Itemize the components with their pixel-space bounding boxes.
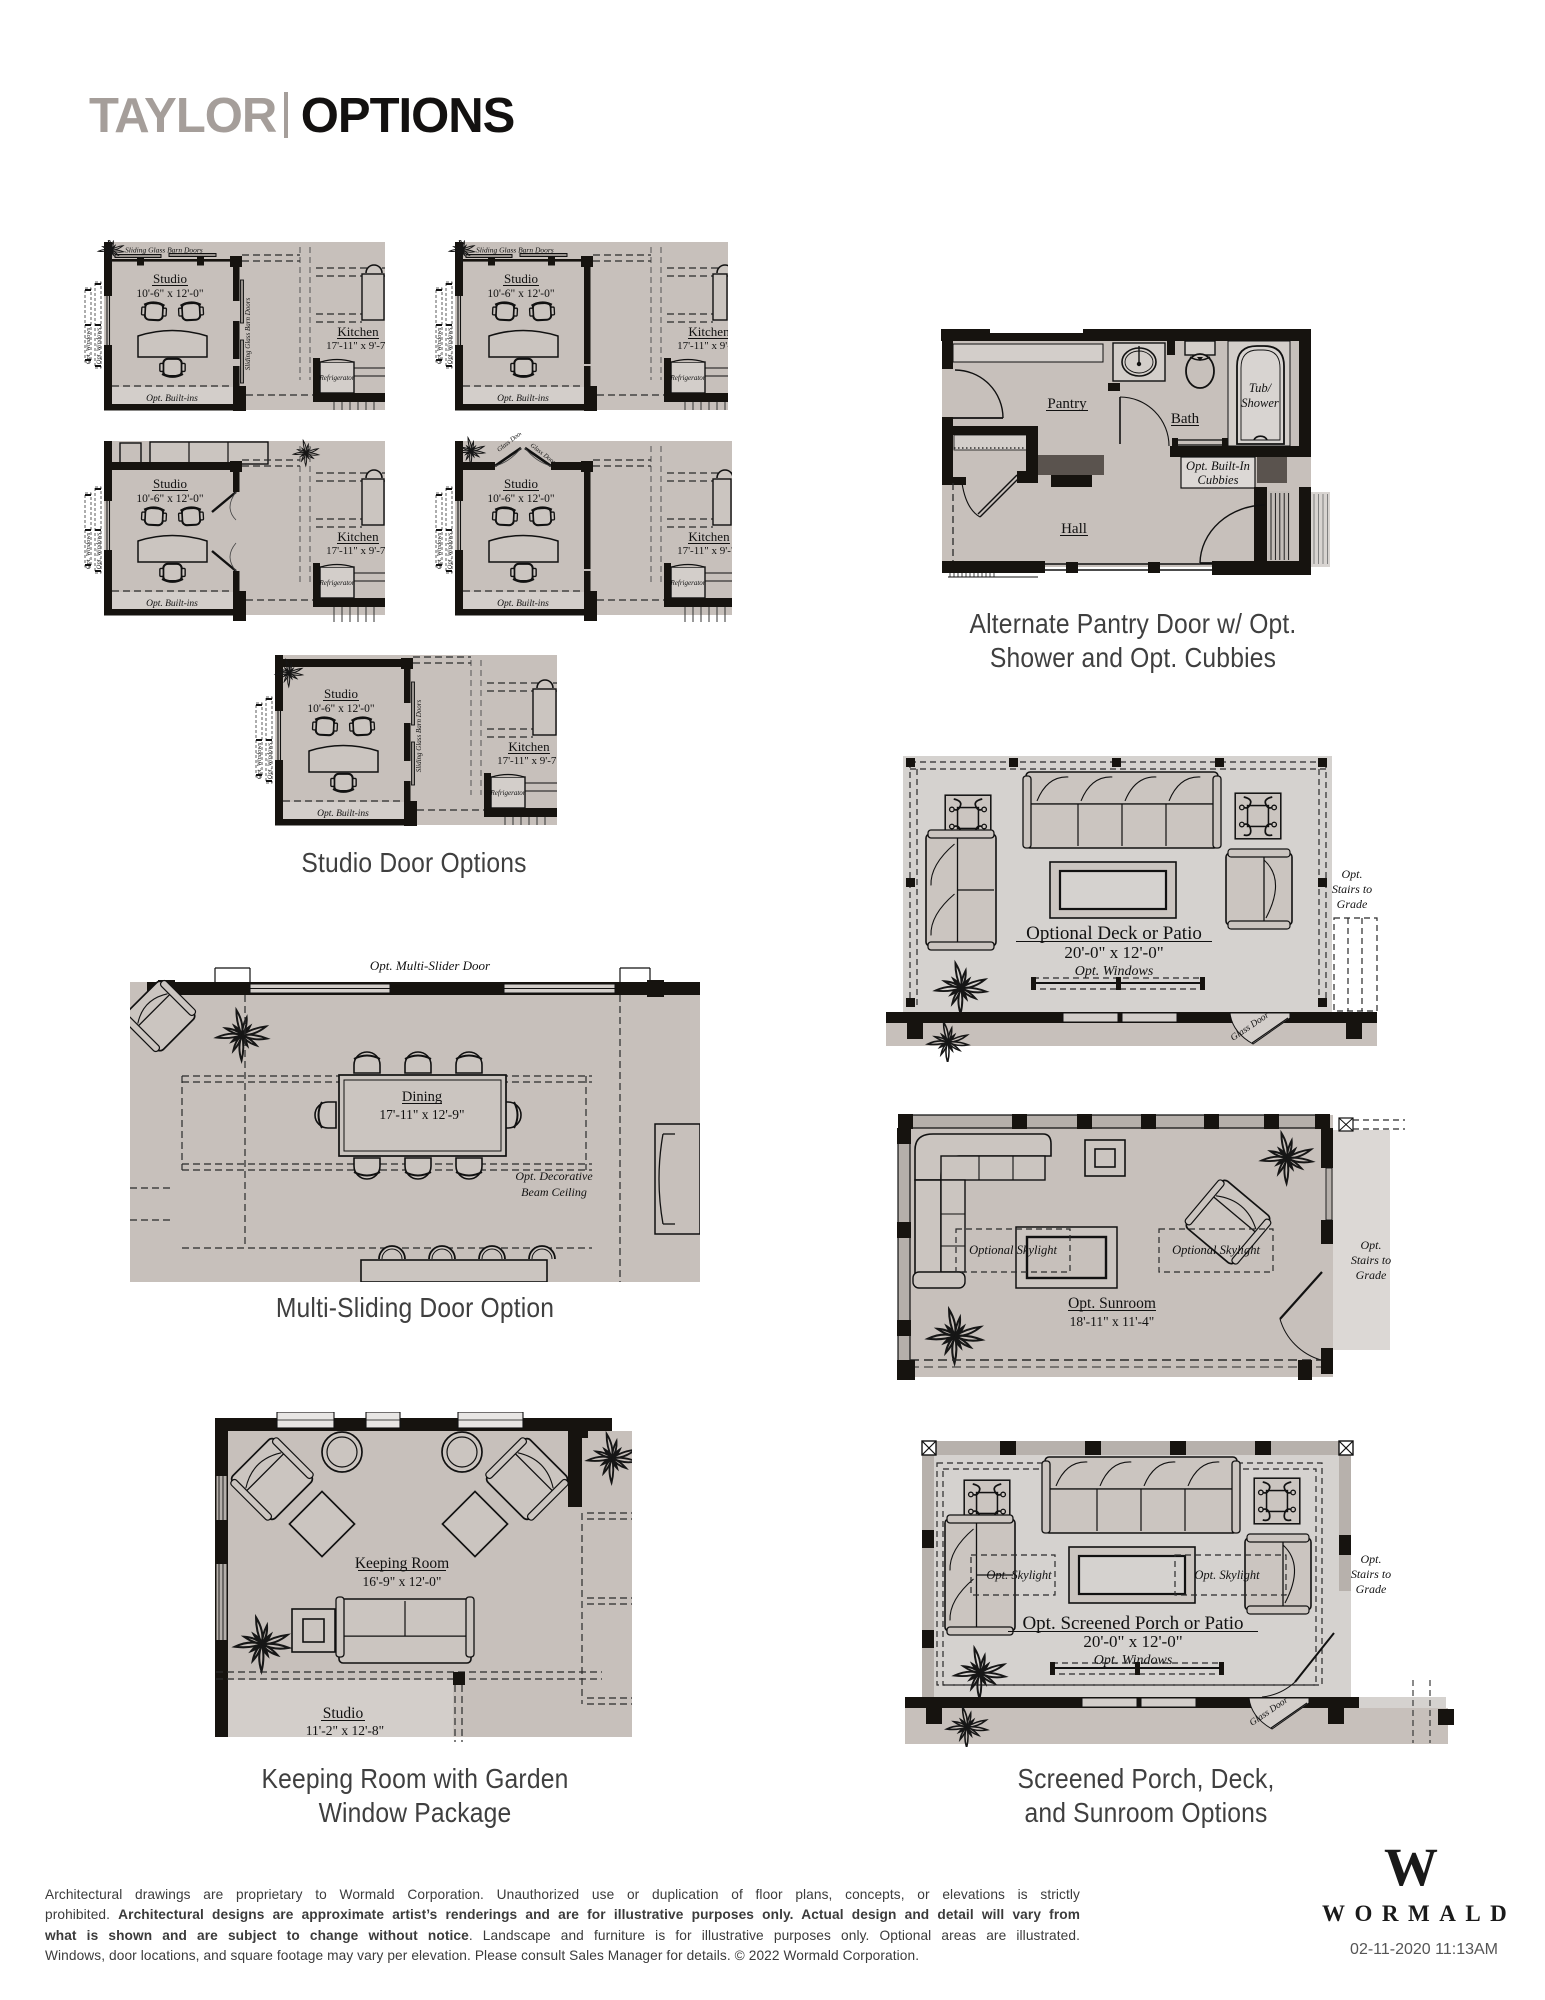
- svg-text:Sliding Glass Barn Doors: Sliding Glass Barn Doors: [415, 699, 423, 772]
- svg-text:20'-0" x 12'-0": 20'-0" x 12'-0": [1064, 943, 1163, 962]
- svg-text:Optional Skylight: Optional Skylight: [969, 1243, 1057, 1257]
- svg-text:Opt.: Opt.: [1361, 1238, 1382, 1252]
- svg-text:Tub/: Tub/: [1249, 381, 1273, 395]
- svg-text:Pantry: Pantry: [1047, 396, 1087, 412]
- svg-text:Stairs to: Stairs to: [1351, 1567, 1391, 1581]
- svg-text:10'-6" x 12'-0": 10'-6" x 12'-0": [136, 288, 203, 300]
- svg-text:Opt. Built-ins: Opt. Built-ins: [317, 809, 369, 819]
- svg-text:Kitchen: Kitchen: [508, 739, 550, 754]
- svg-text:Keeping Room: Keeping Room: [355, 1555, 449, 1572]
- svg-text:Opt. Windows: Opt. Windows: [1075, 964, 1154, 979]
- svg-text:Grade: Grade: [1356, 1268, 1387, 1282]
- svg-text:17'-11" x 12'-9": 17'-11" x 12'-9": [379, 1107, 464, 1122]
- svg-text:Opt. Windows: Opt. Windows: [447, 327, 454, 364]
- svg-text:Grade: Grade: [1337, 897, 1368, 911]
- svg-text:Opt. Built-ins: Opt. Built-ins: [146, 599, 198, 609]
- svg-text:17'-11" x 9'-7": 17'-11" x 9'-7": [326, 545, 385, 557]
- svg-text:Dining: Dining: [402, 1089, 442, 1105]
- svg-text:Bath: Bath: [1171, 411, 1200, 427]
- svg-text:Opt. Built-In: Opt. Built-In: [1186, 459, 1250, 473]
- svg-text:Optional Deck or Patio: Optional Deck or Patio: [1026, 923, 1202, 944]
- svg-text:Opt. Windows: Opt. Windows: [96, 327, 103, 364]
- svg-text:Beam Ceiling: Beam Ceiling: [521, 1185, 587, 1199]
- svg-text:16'-9" x 12'-0": 16'-9" x 12'-0": [363, 1574, 442, 1589]
- svg-text:Opt. Skylight: Opt. Skylight: [986, 1568, 1052, 1582]
- svg-text:Opt.: Opt.: [1361, 1552, 1382, 1566]
- svg-text:Refrigerator: Refrigerator: [670, 374, 706, 382]
- svg-text:Refrigerator: Refrigerator: [490, 789, 526, 797]
- svg-text:Kitchen: Kitchen: [337, 324, 379, 339]
- svg-text:10'-6" x 12'-0": 10'-6" x 12'-0": [487, 493, 554, 505]
- svg-text:Opt. Windows: Opt. Windows: [85, 327, 92, 364]
- svg-text:Stairs to: Stairs to: [1332, 882, 1372, 896]
- svg-text:Opt. Windows: Opt. Windows: [1094, 1653, 1173, 1668]
- svg-text:Opt. Multi-Slider Door: Opt. Multi-Slider Door: [370, 958, 491, 973]
- svg-text:20'-0" x 12'-0": 20'-0" x 12'-0": [1083, 1632, 1182, 1651]
- svg-text:Studio: Studio: [504, 271, 538, 286]
- svg-text:Shower: Shower: [1241, 396, 1279, 410]
- svg-text:Studio: Studio: [324, 686, 358, 701]
- svg-text:Optional Skylight: Optional Skylight: [1172, 1243, 1260, 1257]
- svg-text:10'-6" x 12'-0": 10'-6" x 12'-0": [487, 288, 554, 300]
- svg-text:Refrigerator: Refrigerator: [670, 579, 706, 587]
- svg-text:Opt. Windows: Opt. Windows: [447, 532, 454, 569]
- svg-text:Opt. Windows: Opt. Windows: [267, 742, 274, 779]
- svg-text:Opt. Windows: Opt. Windows: [85, 532, 92, 569]
- svg-text:Opt. Windows: Opt. Windows: [436, 327, 443, 364]
- svg-text:Refrigerator: Refrigerator: [319, 374, 355, 382]
- svg-text:11'-2" x 12'-8": 11'-2" x 12'-8": [306, 1723, 384, 1738]
- svg-text:Sliding Glass Barn Doors: Sliding Glass Barn Doors: [476, 246, 554, 255]
- svg-text:18'-11" x 11'-4": 18'-11" x 11'-4": [1070, 1314, 1155, 1329]
- svg-text:Studio: Studio: [323, 1705, 364, 1722]
- svg-text:Sliding Glass Barn Doors: Sliding Glass Barn Doors: [125, 246, 203, 255]
- svg-text:17'-11" x 9'-7": 17'-11" x 9'-7": [677, 340, 728, 352]
- svg-text:Opt. Windows: Opt. Windows: [256, 742, 263, 779]
- svg-text:Opt. Decorative: Opt. Decorative: [515, 1169, 593, 1183]
- svg-text:Opt. Skylight: Opt. Skylight: [1194, 1568, 1260, 1582]
- svg-text:Opt.: Opt.: [1342, 867, 1363, 881]
- svg-text:Studio: Studio: [153, 271, 187, 286]
- svg-text:10'-6" x 12'-0": 10'-6" x 12'-0": [136, 493, 203, 505]
- svg-text:Opt. Screened Porch or Patio: Opt. Screened Porch or Patio: [1022, 1613, 1243, 1634]
- svg-text:Opt. Windows: Opt. Windows: [96, 532, 103, 569]
- svg-text:Kitchen: Kitchen: [337, 529, 379, 544]
- svg-text:Refrigerator: Refrigerator: [319, 579, 355, 587]
- svg-text:Opt. Sunroom: Opt. Sunroom: [1068, 1295, 1156, 1312]
- svg-text:17'-11" x 9'-7": 17'-11" x 9'-7": [497, 755, 557, 767]
- svg-text:Stairs to: Stairs to: [1351, 1253, 1391, 1267]
- svg-text:Studio: Studio: [504, 476, 538, 491]
- svg-text:Opt. Windows: Opt. Windows: [436, 532, 443, 569]
- svg-text:17'-11" x 9'-7": 17'-11" x 9'-7": [677, 545, 732, 557]
- svg-text:Opt. Built-ins: Opt. Built-ins: [146, 394, 198, 404]
- svg-text:10'-6" x 12'-0": 10'-6" x 12'-0": [307, 703, 374, 715]
- svg-text:Cubbies: Cubbies: [1198, 473, 1239, 487]
- svg-text:17'-11" x 9'-7": 17'-11" x 9'-7": [326, 340, 385, 352]
- svg-text:Sliding Glass Barn Doors: Sliding Glass Barn Doors: [244, 297, 252, 370]
- svg-text:Kitchen: Kitchen: [688, 324, 728, 339]
- svg-text:Grade: Grade: [1356, 1582, 1387, 1596]
- svg-text:Opt. Built-ins: Opt. Built-ins: [497, 599, 549, 609]
- svg-text:Opt. Built-ins: Opt. Built-ins: [497, 394, 549, 404]
- svg-text:Kitchen: Kitchen: [688, 529, 730, 544]
- svg-text:Studio: Studio: [153, 476, 187, 491]
- svg-text:Hall: Hall: [1061, 521, 1087, 537]
